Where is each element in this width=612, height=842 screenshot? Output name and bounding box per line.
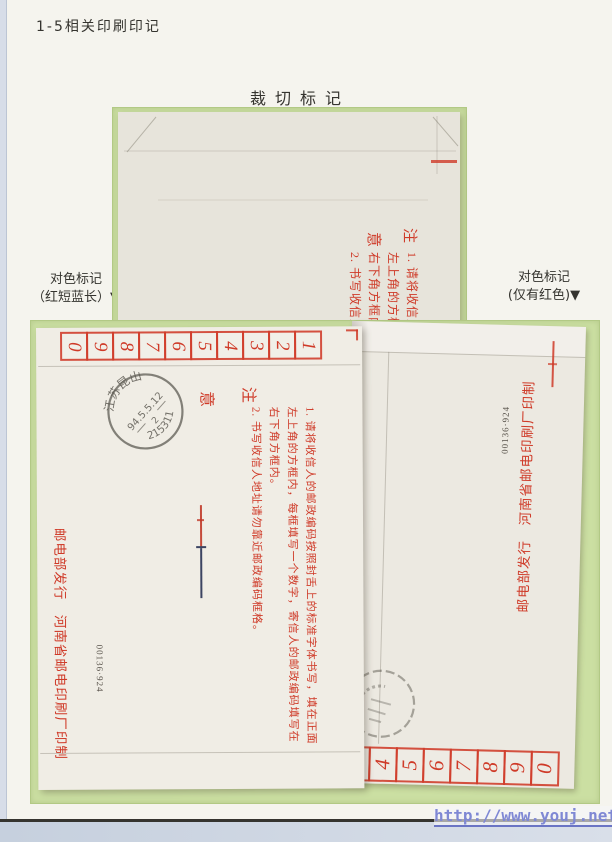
notes-heading-top: 注: [400, 228, 421, 244]
digit: 4: [370, 759, 395, 770]
digit-box: 2: [268, 331, 296, 360]
registration-mark-red-tick: [197, 519, 204, 521]
digit-box: 5: [190, 331, 218, 360]
digit-box: 7: [449, 749, 479, 785]
registration-mark-blue-segment: [200, 548, 202, 598]
digit: 4: [219, 341, 241, 351]
digit: 9: [505, 762, 530, 773]
main-envelope-imprint: 邮电部发行 河南省邮电印刷厂印制: [51, 528, 72, 760]
digit: 0: [63, 341, 85, 351]
page-heading: 1-5相关印刷印记: [36, 16, 161, 36]
digit: 9: [89, 341, 111, 351]
digit-box: 6: [422, 748, 452, 784]
main-envelope-flap-fold: [38, 364, 360, 367]
right-envelope: 邮电部发行 河南省邮电印刷厂印制 00136·924 3 4 5 6 7 8 9…: [340, 321, 586, 789]
digit: 1: [297, 340, 319, 350]
right-caption: 对色标记 (仅有红色)▼: [490, 269, 598, 305]
digit-box: 9: [86, 332, 114, 361]
digit-box: 4: [368, 746, 398, 782]
notes-heading-bottom: 意: [364, 232, 385, 248]
red-registration-tick: [548, 363, 557, 365]
postmark: 江苏昆山 94.5.5.12 2 215311: [86, 352, 205, 471]
main-envelope-bottom-fold: [40, 751, 360, 754]
digit-box: 6: [164, 331, 192, 360]
digit: 5: [397, 759, 422, 770]
digit-box: 1: [294, 331, 322, 360]
digit-box: 3: [242, 331, 270, 360]
page-title: 裁切标记: [250, 85, 350, 109]
main-envelope: 0 9 8 7 6 5 4 3 2 1 江苏昆山 94.5.5.12 2 215…: [36, 326, 364, 790]
digit-box: 8: [112, 331, 140, 360]
digit-box: 5: [395, 747, 425, 783]
notes-heading-top: 注: [238, 387, 262, 404]
digit: 7: [451, 761, 476, 772]
top-envelope: 注 意 1. 请将收信人的邮政编码按照封舌上的标准字体书写，填在正面 左上角的方…: [118, 112, 460, 344]
red-corner-cutting-mark-v: [356, 329, 358, 340]
digit: 8: [115, 341, 137, 351]
digit: 5: [193, 341, 215, 351]
right-envelope-serial: 00136·924: [500, 406, 511, 454]
right-envelope-digit-strip: 3 4 5 6 7 8 9 0: [341, 746, 560, 787]
album-page-scan: { "page": { "heading": "1-5相关印刷印记", "tit…: [0, 0, 612, 842]
scan-left-edge: [0, 0, 7, 842]
digit: 2: [271, 340, 293, 350]
registration-mark-cross-tick: [196, 546, 206, 548]
digit: 7: [141, 341, 163, 351]
notes-item1-line3: 右下角方框内。: [266, 407, 282, 491]
main-envelope-digit-strip: 0 9 8 7 6 5 4 3 2 1: [60, 331, 322, 361]
notes-heading-bottom: 意: [196, 391, 220, 408]
watermark-link[interactable]: http://www.youj.net/: [434, 806, 612, 827]
right-caption-line2: (仅有红色)▼: [490, 287, 598, 305]
digit-box: 8: [476, 749, 506, 785]
right-envelope-imprint: 邮电部发行 河南省邮电印刷厂印制: [512, 380, 538, 612]
registration-mark-red-segment: [200, 505, 202, 548]
digit-box: 0: [530, 751, 560, 787]
digit: 6: [167, 341, 189, 351]
digit-box: 9: [503, 750, 533, 786]
notes-item1-line2: 左上角的方框内，每框填写一个数字，寄信人的邮政编码填写在: [284, 407, 302, 743]
main-envelope-serial: 00136·924: [95, 645, 105, 693]
digit: 3: [245, 341, 267, 351]
notes-item1-line1: 1. 请将收信人的邮政编码按照封舌上的标准字体书写，填在正面: [302, 407, 320, 745]
digit: 8: [478, 762, 503, 773]
red-cutting-mark: [431, 160, 457, 163]
digit: 6: [424, 760, 449, 771]
digit: 0: [532, 763, 557, 774]
notes-item2: 2. 书写收信人地址请勿靠近邮政编码框格。: [248, 407, 265, 637]
digit-box: 4: [216, 331, 244, 360]
right-caption-line1: 对色标记: [490, 269, 598, 287]
digit-box: 0: [60, 332, 88, 361]
